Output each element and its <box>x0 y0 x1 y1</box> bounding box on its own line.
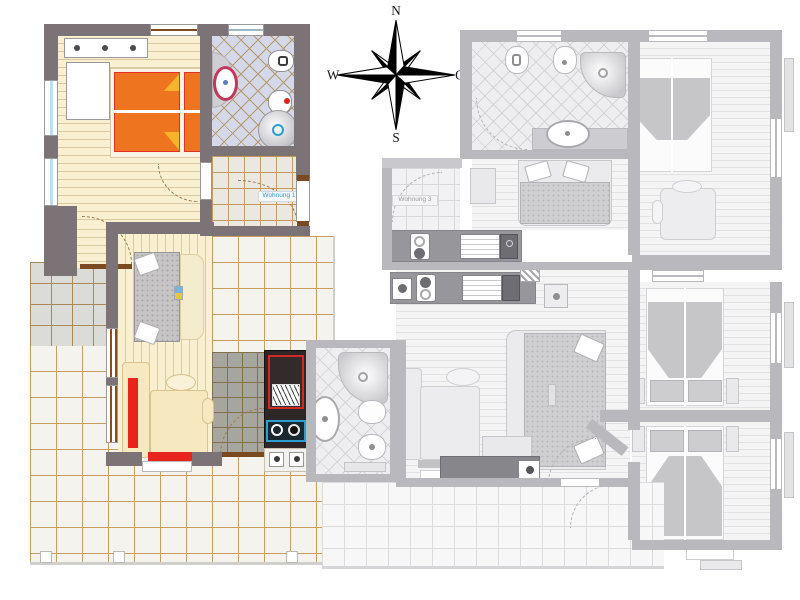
armchair-back <box>166 374 196 391</box>
g-shower-drain <box>598 68 608 78</box>
g2-counter-dot <box>553 293 560 300</box>
g-wall-left <box>460 30 472 158</box>
g-wall-living-right <box>628 270 640 430</box>
wall-bedroom-bath <box>200 24 212 162</box>
g-balcony <box>784 58 794 132</box>
g2-kitchen-low-dot <box>526 466 534 474</box>
dresser-knob <box>102 45 108 51</box>
wall-east-bath <box>294 24 310 154</box>
g-wall-bedroom-b-south <box>632 540 782 550</box>
g-terrace-edge <box>322 566 664 569</box>
terrace-post <box>113 551 125 563</box>
g2-sink-bowl <box>502 275 520 301</box>
wall-west-corner <box>44 206 77 276</box>
g-hob-plate <box>414 248 425 259</box>
g-wall-right-lower <box>770 364 782 438</box>
bed-seam <box>114 110 207 113</box>
g-toilet-seat <box>512 54 521 66</box>
doormat <box>142 461 192 472</box>
wall-west <box>44 24 58 80</box>
g-wall-hall-left <box>382 158 392 262</box>
wall-living-south <box>106 452 142 466</box>
window-west-2 <box>44 158 58 206</box>
g2-sofa-seat <box>420 386 480 460</box>
g-wall-bath-bedroom <box>628 30 640 255</box>
g2-living-wall-south <box>396 478 560 487</box>
g-armchair-arm <box>652 200 663 224</box>
g2-terrace-door-opening <box>560 478 600 487</box>
g2-hob-plate <box>420 277 431 288</box>
g2-shower-drain <box>358 372 368 382</box>
burner-dot <box>294 456 300 462</box>
g-bidet-tap <box>562 60 567 65</box>
g-washbasin-drain <box>565 131 570 136</box>
g2-sink-drainer <box>462 275 502 301</box>
g-armchair <box>660 188 716 240</box>
g2-bidet-dot <box>369 444 375 450</box>
stove-grill <box>272 384 300 406</box>
g-wall-bed-divider-top <box>632 255 782 270</box>
wall-living-south <box>192 452 222 466</box>
g-wall-ab-divider <box>600 410 782 422</box>
bidet-tap <box>284 98 290 104</box>
door-bedroom-hall <box>200 162 212 200</box>
g-window-north-2 <box>648 30 708 42</box>
g-bed-seam <box>671 58 673 172</box>
g-sink-drainer <box>460 234 500 259</box>
g-wall-top <box>708 30 772 42</box>
french-window-west-1 <box>106 328 118 378</box>
g-wall-right <box>770 178 782 256</box>
g3-nightstand <box>726 378 739 404</box>
g-balcony <box>784 432 794 498</box>
g2-folded-blanket <box>548 384 556 406</box>
dresser-knob <box>130 45 136 51</box>
g-wall-right-lower <box>770 490 782 540</box>
g-balcony <box>784 302 794 368</box>
terrace-post <box>40 551 52 563</box>
hob-plate <box>288 424 300 436</box>
entry-door-post <box>297 175 309 181</box>
wall-living-north <box>106 222 214 234</box>
g-window-east-3 <box>770 438 782 490</box>
french-window-west-2 <box>106 385 118 443</box>
day-bed-frame <box>180 254 204 340</box>
g-wall-living-right <box>628 462 640 540</box>
g2-bath-wall-left <box>306 340 316 482</box>
washbasin-drain <box>223 80 228 85</box>
wall-hall-south <box>212 226 310 236</box>
g2-bath-wall-right <box>390 340 406 482</box>
g-sink-drain <box>506 240 513 247</box>
compass-label-north: N <box>391 3 401 18</box>
window-north-bedroom <box>150 24 198 36</box>
dresser-knob <box>74 45 80 51</box>
apartment-label-greyed: Wohnung 3 <box>392 195 438 206</box>
g2-washbasin-drain <box>322 416 328 422</box>
window-west-1 <box>44 80 58 136</box>
g2-armchair-back <box>446 368 480 386</box>
g-sofabed-mattress <box>520 182 610 224</box>
g-wall-right <box>770 30 782 118</box>
g-wall-right-lower <box>770 282 782 312</box>
shower-drain <box>272 124 284 136</box>
sofa-armrest <box>202 398 214 424</box>
g3-bed-a-pillow <box>688 380 722 402</box>
window-north-bath <box>228 24 264 36</box>
toilet-seat <box>278 56 288 66</box>
burner-dot <box>274 456 280 462</box>
floor-plan: N O S W <box>0 0 800 600</box>
g2-hob-plate <box>420 289 431 300</box>
terrace-post <box>286 551 298 563</box>
entry-door-opening <box>296 180 310 222</box>
g2-living-wall-south <box>600 478 632 487</box>
g3-dresser <box>700 560 742 570</box>
corner-sofa-seat <box>150 390 208 458</box>
sofa-cushion-red <box>128 378 138 448</box>
g2-bath-wall-bottom <box>306 474 406 482</box>
g2-toilet <box>358 400 386 424</box>
g3-bed-b-pillow <box>688 430 722 452</box>
wall-west <box>44 136 58 158</box>
wall-living-west <box>106 378 118 385</box>
wall-living-west <box>106 234 118 328</box>
g-window-east <box>770 118 782 178</box>
g2-bath-mat <box>344 462 386 472</box>
g3-bed-b-pillow <box>650 430 684 452</box>
g-window-north <box>516 30 562 42</box>
g3-nightstand <box>726 426 739 452</box>
g-side-table <box>470 168 496 204</box>
g3-bed-a-pillow <box>650 380 684 402</box>
terrace-east <box>212 236 335 348</box>
compass-label-west: W <box>327 68 340 83</box>
wall-top <box>55 24 150 36</box>
g-wall-bath-south <box>460 150 628 159</box>
g-window-east-2 <box>770 312 782 364</box>
compass-rose: N O S W <box>326 2 466 148</box>
wardrobe <box>66 62 110 120</box>
sink-bowl <box>271 424 283 436</box>
g3-bed-b-seam <box>684 426 686 540</box>
g3-bed-a-seam <box>684 288 686 406</box>
g2-appliance-dial <box>398 284 407 293</box>
folded-blanket <box>174 286 183 300</box>
g-window-bedroom-a <box>652 270 704 282</box>
g-hob-plate <box>414 236 425 247</box>
apartment-label-highlighted: Wohnung 1 <box>258 191 300 202</box>
compass-label-south: S <box>392 130 399 145</box>
recess-door <box>222 452 264 457</box>
g-armchair-back <box>672 180 702 193</box>
g-wall-hall-top <box>382 158 462 168</box>
g-wall-mid-horizontal <box>382 262 632 270</box>
